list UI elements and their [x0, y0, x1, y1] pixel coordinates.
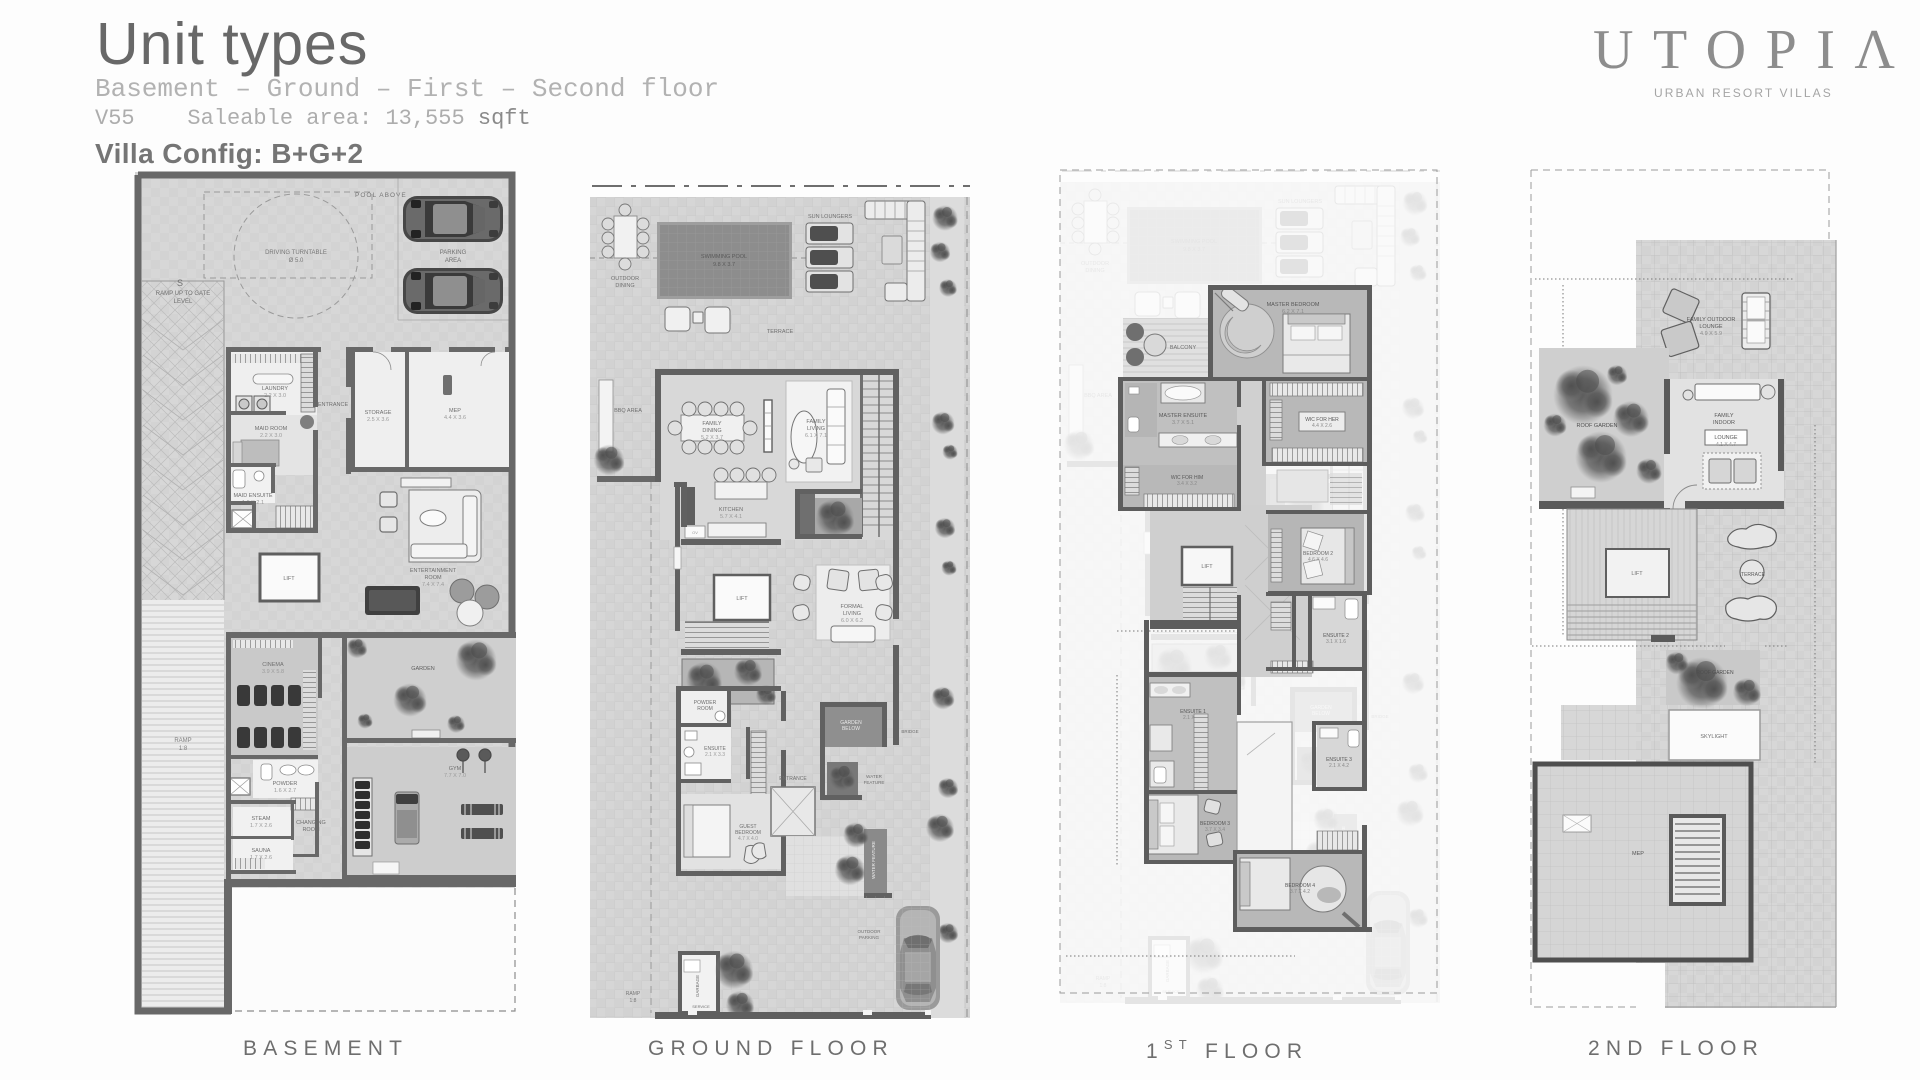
svg-text:1:8: 1:8 — [179, 746, 188, 752]
svg-text:1.7 X 2.6: 1.7 X 2.6 — [250, 823, 272, 829]
svg-text:BBQ AREA: BBQ AREA — [614, 408, 642, 414]
svg-text:3.7 X 4.2: 3.7 X 4.2 — [1290, 889, 1310, 895]
svg-text:ENTRANCE: ENTRANCE — [779, 776, 807, 782]
svg-text:ROOF GARDEN: ROOF GARDEN — [1696, 670, 1734, 676]
svg-text:3.4 X 3.2: 3.4 X 3.2 — [1177, 481, 1197, 487]
svg-text:FAMILY: FAMILY — [806, 419, 825, 425]
svg-text:LEVEL: LEVEL — [174, 299, 193, 305]
svg-text:Ø 5.0: Ø 5.0 — [289, 258, 304, 264]
svg-text:MASTER ENSUITE: MASTER ENSUITE — [1159, 413, 1208, 419]
svg-text:POWDER: POWDER — [273, 781, 298, 787]
svg-text:LIFT: LIFT — [283, 576, 295, 582]
svg-text:ROOM: ROOM — [697, 706, 713, 712]
svg-text:RAMP: RAMP — [626, 991, 641, 997]
svg-text:LIFT: LIFT — [1631, 571, 1643, 577]
svg-text:LAUNDRY: LAUNDRY — [262, 386, 289, 392]
svg-text:FEATURE: FEATURE — [864, 780, 885, 785]
svg-text:GARDEN: GARDEN — [411, 666, 435, 672]
svg-text:7.7 X 7.0: 7.7 X 7.0 — [444, 773, 466, 779]
svg-text:RAMP UP TO GATE: RAMP UP TO GATE — [156, 291, 210, 297]
svg-text:6.1 X 7.1: 6.1 X 7.1 — [805, 433, 827, 439]
svg-text:LOUNGE: LOUNGE — [1714, 435, 1738, 441]
svg-text:FORMAL: FORMAL — [841, 604, 864, 610]
svg-text:SAUNA: SAUNA — [252, 848, 271, 854]
svg-text:RAMP: RAMP — [174, 738, 191, 744]
svg-text:SKYLIGHT: SKYLIGHT — [1700, 734, 1728, 740]
svg-text:INDOOR: INDOOR — [1713, 420, 1735, 426]
svg-text:2.2 X 3.0: 2.2 X 3.0 — [264, 393, 286, 399]
svg-text:MAID ROOM: MAID ROOM — [255, 426, 288, 432]
svg-text:3.7 X 3.4: 3.7 X 3.4 — [1205, 827, 1225, 833]
svg-text:WATER FEATURE: WATER FEATURE — [871, 841, 876, 879]
svg-text:LIVING: LIVING — [843, 611, 861, 617]
svg-text:DINING: DINING — [702, 428, 721, 434]
svg-text:4.4 X 3.6: 4.4 X 3.6 — [444, 415, 466, 421]
svg-text:SWIMMING POOL: SWIMMING POOL — [701, 254, 747, 260]
svg-text:ROOF GARDEN: ROOF GARDEN — [1577, 423, 1618, 429]
svg-text:DRIVING TURNTABLE: DRIVING TURNTABLE — [265, 250, 327, 256]
svg-text:LIFT: LIFT — [1201, 564, 1213, 570]
svg-text:2.1 X 3.3: 2.1 X 3.3 — [705, 752, 725, 758]
svg-text:CINEMA: CINEMA — [262, 662, 284, 668]
svg-text:1:8: 1:8 — [630, 998, 637, 1004]
svg-text:STORAGE: STORAGE — [365, 410, 392, 416]
svg-text:5.7 X 4.1: 5.7 X 4.1 — [720, 514, 742, 520]
svg-text:KITCHEN: KITCHEN — [719, 507, 743, 513]
svg-text:4.1 X 4.7: 4.1 X 4.7 — [1716, 442, 1736, 448]
svg-text:7.4 X 7.4: 7.4 X 7.4 — [422, 582, 444, 588]
svg-text:SUN LOUNGERS: SUN LOUNGERS — [808, 214, 852, 220]
svg-text:2.5 X 3.6: 2.5 X 3.6 — [367, 417, 389, 423]
svg-text:2.1 X 4.2: 2.1 X 4.2 — [1329, 763, 1349, 769]
svg-text:3.9 X 5.8: 3.9 X 5.8 — [262, 669, 284, 675]
svg-text:MAID ENSUITE: MAID ENSUITE — [233, 493, 272, 499]
svg-text:LIFT: LIFT — [736, 596, 748, 602]
svg-text:9.8 X 3.7: 9.8 X 3.7 — [713, 262, 735, 268]
svg-text:TERRACE: TERRACE — [1741, 572, 1766, 578]
svg-text:MASTER BEDROOM: MASTER BEDROOM — [1267, 302, 1320, 308]
svg-text:TERRACE: TERRACE — [767, 329, 794, 335]
svg-text:MEP: MEP — [449, 408, 461, 414]
svg-text:OUTDOOR: OUTDOOR — [611, 276, 639, 282]
svg-text:LIVING: LIVING — [807, 426, 825, 432]
svg-text:BELOW: BELOW — [842, 726, 860, 732]
svg-text:BALCONY: BALCONY — [1170, 345, 1197, 351]
svg-text:AREA: AREA — [445, 258, 461, 264]
svg-text:PARKING: PARKING — [440, 250, 467, 256]
svg-text:STEAM: STEAM — [252, 816, 271, 822]
svg-text:4.6 X 4.6: 4.6 X 4.6 — [1308, 557, 1328, 563]
svg-text:WATER: WATER — [866, 774, 882, 779]
svg-text:FAMILY: FAMILY — [1714, 413, 1733, 419]
svg-text:LOUNGE: LOUNGE — [1699, 324, 1723, 330]
svg-text:3.7 X 5.1: 3.7 X 5.1 — [1172, 420, 1194, 426]
svg-text:4.7 X 4.0: 4.7 X 4.0 — [738, 836, 758, 842]
svg-text:FAMILY OUTDOOR: FAMILY OUTDOOR — [1687, 317, 1736, 323]
svg-text:4.4 X 2.6: 4.4 X 2.6 — [1312, 423, 1332, 429]
svg-text:ENTERTAINMENT: ENTERTAINMENT — [410, 568, 457, 574]
svg-text:BRIDGE: BRIDGE — [901, 729, 918, 734]
svg-text:GYM: GYM — [449, 766, 462, 772]
svg-text:FAMILY: FAMILY — [702, 421, 721, 427]
svg-text:CHANGING: CHANGING — [296, 820, 326, 826]
svg-text:3.1 X 1.6: 3.1 X 1.6 — [1326, 639, 1346, 645]
svg-text:S: S — [177, 278, 183, 288]
svg-text:1.7 X 2.6: 1.7 X 2.6 — [250, 855, 272, 861]
svg-text:5.2 X 3.7: 5.2 X 3.7 — [701, 435, 723, 441]
svg-text:POOL ABOVE: POOL ABOVE — [355, 192, 407, 199]
svg-text:ROOM: ROOM — [424, 575, 442, 581]
svg-text:1.6 X 2.7: 1.6 X 2.7 — [274, 788, 296, 794]
svg-text:SERVICE: SERVICE — [692, 1004, 710, 1009]
svg-text:ENTRANCE: ENTRANCE — [318, 402, 349, 408]
svg-text:6.2 X 7.1: 6.2 X 7.1 — [1282, 309, 1304, 315]
svg-text:DINING: DINING — [615, 283, 634, 289]
svg-text:6.0 X 6.2: 6.0 X 6.2 — [841, 618, 863, 624]
svg-text:OV: OV — [692, 530, 698, 535]
svg-text:2.2 X 3.0: 2.2 X 3.0 — [260, 433, 282, 439]
svg-text:4.9 X 5.9: 4.9 X 5.9 — [1700, 331, 1722, 337]
svg-text:MEP: MEP — [1632, 851, 1644, 857]
svg-text:GARBAGE: GARBAGE — [695, 975, 700, 997]
